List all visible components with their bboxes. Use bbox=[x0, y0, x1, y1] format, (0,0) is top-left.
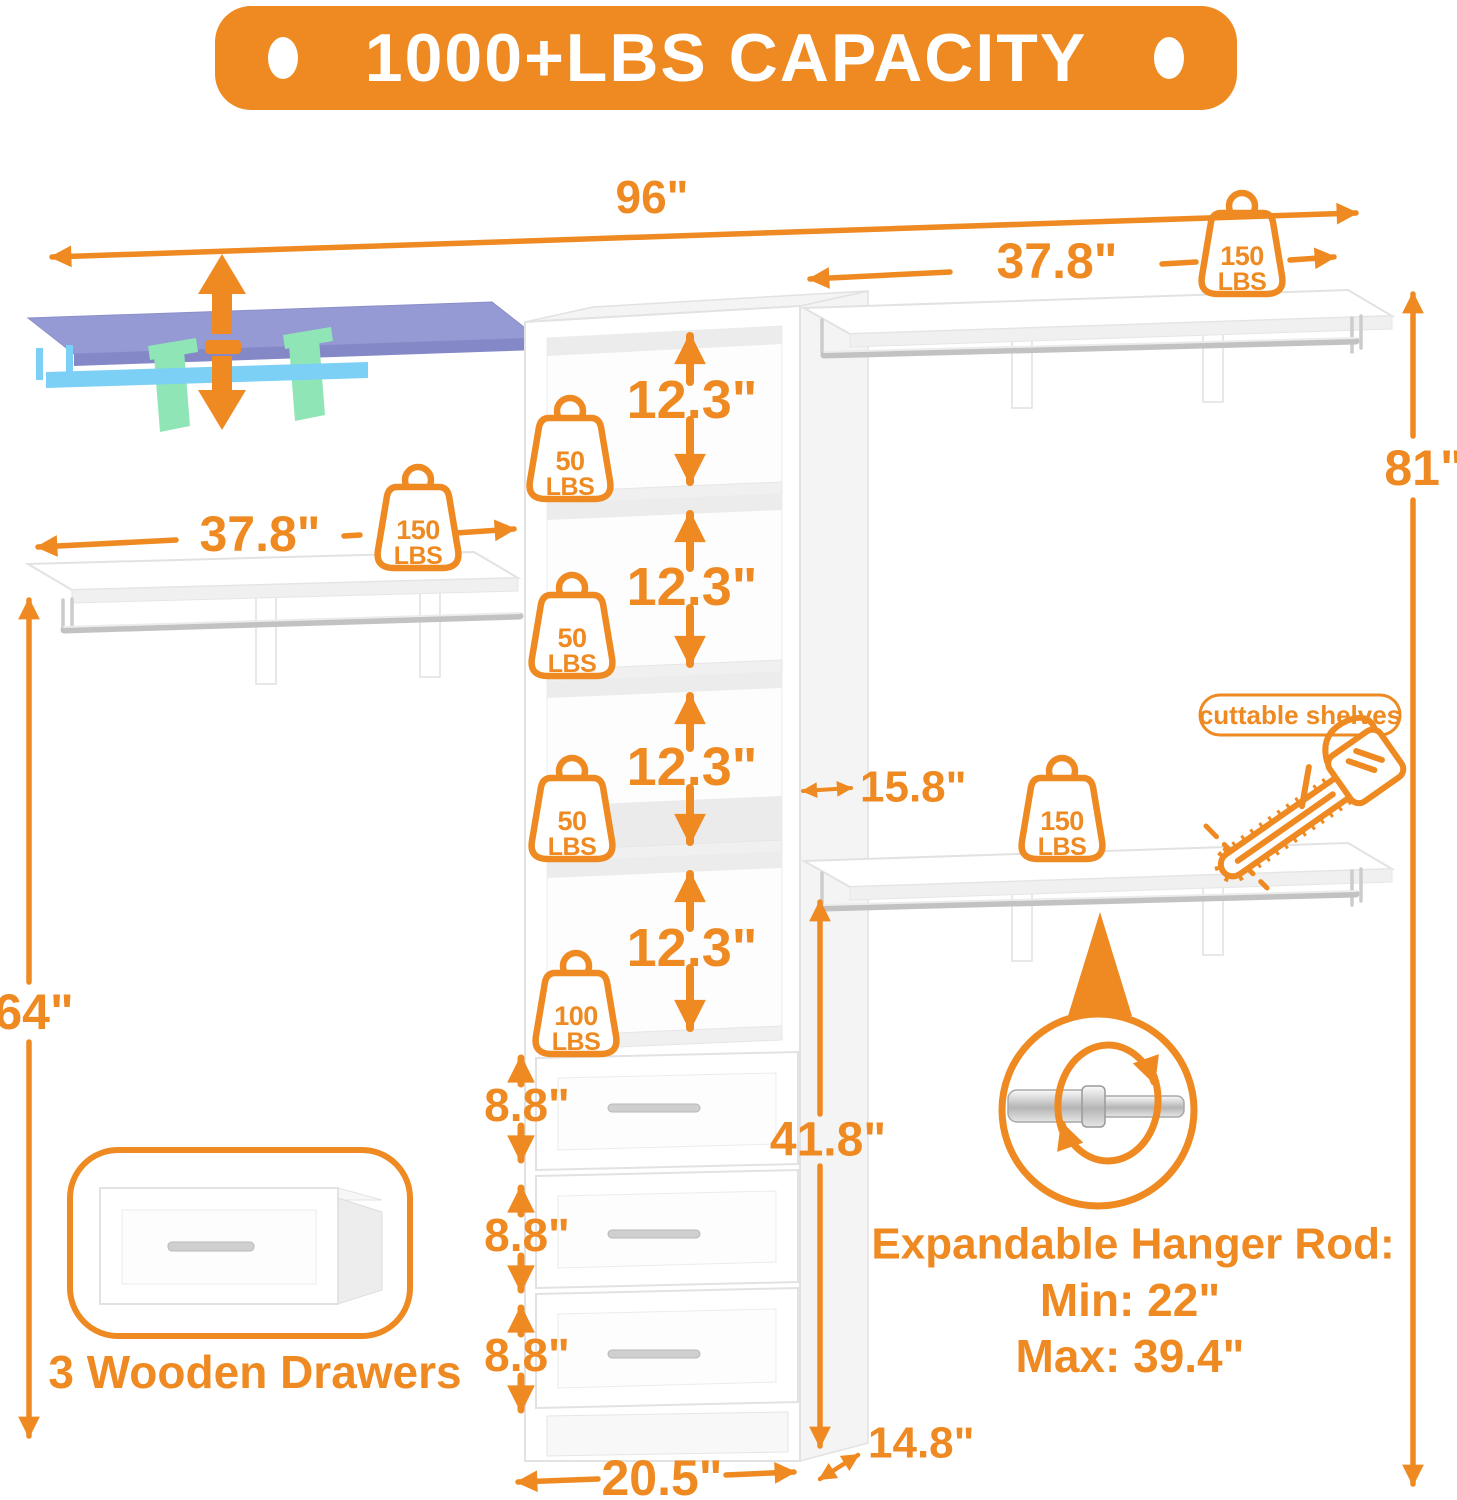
expandable-rod-callout: Expandable Hanger Rod: Min: 22" Max: 39.… bbox=[871, 912, 1394, 1382]
badge-unit: LBS bbox=[548, 650, 597, 678]
pointer-arrow-icon bbox=[1068, 912, 1132, 1016]
green-bracket-1 bbox=[154, 350, 190, 432]
dim-line-378-top-c bbox=[1290, 257, 1334, 260]
dim-line-96 bbox=[52, 213, 1356, 257]
top-right-shelf-unit bbox=[804, 290, 1392, 408]
drawer-3-panel bbox=[558, 1309, 776, 1388]
dimension-left-height: 64" bbox=[0, 600, 74, 1436]
drawer-2 bbox=[536, 1170, 798, 1288]
badge-value: 50 bbox=[555, 446, 584, 476]
dim-label-88-2: 8.8" bbox=[484, 1209, 570, 1261]
banner-label: 1000+LBS CAPACITY bbox=[365, 20, 1087, 96]
weight-badge-top-right: 150 LBS bbox=[1202, 193, 1283, 296]
drawer-3 bbox=[536, 1288, 798, 1408]
left-shelf-bracket-1 bbox=[256, 597, 276, 684]
dim-line-378-left-c bbox=[456, 529, 514, 533]
badge-value: 150 bbox=[1040, 806, 1084, 836]
dim-label-418: 41.8" bbox=[770, 1114, 886, 1167]
top-right-bracket-1 bbox=[1012, 334, 1032, 408]
dim-label-81: 81" bbox=[1384, 440, 1457, 496]
dimension-right-height: 81" bbox=[1384, 294, 1457, 1484]
rod-collar bbox=[1082, 1086, 1105, 1127]
badge-unit: LBS bbox=[546, 473, 595, 501]
dim-label-88-1: 8.8" bbox=[484, 1079, 570, 1131]
weight-badge-left: 150 LBS bbox=[378, 467, 459, 570]
dim-line-378-top-b bbox=[1162, 262, 1196, 264]
hanger-rod-title: Expandable Hanger Rod: bbox=[871, 1220, 1394, 1269]
hanger-rod-min: Min: 22" bbox=[1040, 1274, 1220, 1326]
dim-label-158: 15.8" bbox=[860, 763, 967, 812]
dimension-overall-width: 96" bbox=[52, 171, 1356, 257]
badge-unit: LBS bbox=[552, 1028, 601, 1056]
left-hanger-rod bbox=[64, 616, 520, 630]
dim-line-378-left-a bbox=[38, 540, 176, 547]
top-right-bracket-2 bbox=[1203, 328, 1223, 402]
dim-label-148: 14.8" bbox=[868, 1419, 975, 1468]
left-shelf-unit bbox=[28, 552, 520, 684]
banner-dot-left-icon bbox=[268, 37, 298, 79]
product-dimension-diagram: 1000+LBS CAPACITY bbox=[0, 0, 1457, 1500]
drawer-3-handle bbox=[608, 1350, 700, 1358]
drawer-2-handle bbox=[608, 1230, 700, 1238]
badge-unit: LBS bbox=[1038, 833, 1087, 861]
drawer-1-handle bbox=[608, 1104, 700, 1112]
dim-label-88-3: 8.8" bbox=[484, 1329, 570, 1381]
inset-drawer-side bbox=[338, 1198, 382, 1304]
badge-value: 150 bbox=[1220, 241, 1264, 271]
badge-value: 150 bbox=[396, 515, 440, 545]
capacity-banner: 1000+LBS CAPACITY bbox=[215, 6, 1237, 110]
drawers-caption: 3 Wooden Drawers bbox=[48, 1346, 461, 1398]
dim-line-205-a bbox=[518, 1479, 598, 1482]
adjustable-shelf-illustration bbox=[28, 254, 538, 432]
lower-right-bracket-1 bbox=[1012, 887, 1032, 961]
badge-value: 50 bbox=[557, 623, 586, 653]
badge-value: 50 bbox=[557, 806, 586, 836]
banner-dot-right-icon bbox=[1154, 37, 1184, 79]
hanger-rod-max: Max: 39.4" bbox=[1016, 1330, 1245, 1382]
inset-drawer-handle bbox=[168, 1242, 254, 1251]
diagram-canvas: 1000+LBS CAPACITY bbox=[0, 0, 1457, 1500]
dim-label-64: 64" bbox=[0, 984, 74, 1040]
lower-right-bracket-2 bbox=[1203, 881, 1223, 955]
badge-unit: LBS bbox=[1218, 268, 1267, 296]
dim-line-148 bbox=[820, 1455, 858, 1479]
left-shelf-bracket-2 bbox=[420, 590, 440, 677]
dim-label-96: 96" bbox=[616, 171, 689, 223]
blue-rod-hanger-1 bbox=[36, 348, 43, 380]
badge-unit: LBS bbox=[394, 542, 443, 570]
dim-line-205-b bbox=[726, 1472, 794, 1475]
rod-thin-tube bbox=[1096, 1096, 1184, 1117]
weight-badge-bottom-right: 150 LBS bbox=[1022, 758, 1103, 861]
drawer-inset: 3 Wooden Drawers bbox=[48, 1150, 461, 1398]
dim-line-378-top-a bbox=[810, 272, 950, 279]
dim-label-378-top: 37.8" bbox=[996, 233, 1117, 289]
adjust-middle-bar-icon bbox=[205, 340, 241, 354]
dim-label-205: 20.5" bbox=[601, 1450, 722, 1500]
dim-label-378-left: 37.8" bbox=[199, 506, 320, 562]
drawer-1 bbox=[536, 1052, 798, 1170]
badge-unit: LBS bbox=[548, 833, 597, 861]
dim-line-378-left-b bbox=[344, 535, 360, 536]
badge-value: 100 bbox=[554, 1001, 598, 1031]
